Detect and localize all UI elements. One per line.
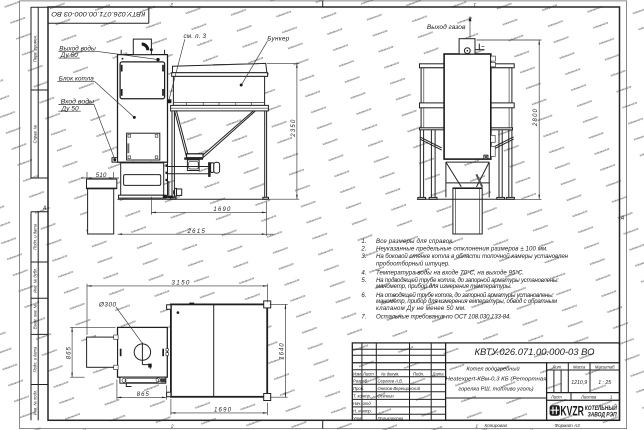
svg-text:1690: 1690 — [214, 407, 232, 413]
svg-text:Подп. и дата: Подп. и дата — [32, 223, 37, 249]
svg-text:Нач. отд: Нач. отд — [353, 401, 371, 406]
svg-text:Дата: Дата — [432, 371, 445, 376]
svg-text:КВТУ.026.071.00.000-03 ВО: КВТУ.026.071.00.000-03 ВО — [475, 347, 596, 358]
svg-text:ЗАВОД РЭП: ЗАВОД РЭП — [588, 412, 618, 418]
svg-text:Утв.: Утв. — [353, 416, 363, 421]
svg-text:Инв. № подл.: Инв. № подл. — [32, 390, 37, 415]
svg-text:Температура воды на входе 70°С: Температура воды на входе 70°С, на выход… — [376, 269, 524, 276]
svg-text:Масса: Масса — [573, 364, 586, 369]
svg-text:Инв. № дубл.: Инв. № дубл. — [32, 268, 37, 293]
svg-text:Выход газов: Выход газов — [427, 23, 466, 31]
svg-text:пробоотборный штуцер.: пробоотборный штуцер. — [376, 260, 450, 267]
svg-text:Остальные требования по ОСТ 10: Остальные требования по ОСТ 108.030.133-… — [376, 314, 511, 321]
svg-text:Разраб.: Разраб. — [353, 379, 368, 384]
svg-text:КОТЕЛЬНЫЙ: КОТЕЛЬНЫЙ — [585, 404, 618, 412]
svg-text:865: 865 — [137, 392, 150, 398]
svg-text:Справ. №: Справ. № — [32, 124, 37, 143]
svg-text:1 : 25: 1 : 25 — [598, 380, 611, 386]
svg-text:Осечкин: Осечкин — [378, 394, 395, 399]
svg-text:А: А — [42, 206, 47, 212]
svg-text:4.: 4. — [361, 269, 366, 276]
svg-text:Подп. и дата: Подп. и дата — [32, 346, 37, 372]
svg-text:3150: 3150 — [172, 280, 191, 286]
svg-text:1: 1 — [476, 423, 479, 428]
svg-text:KVZR: KVZR — [560, 403, 584, 418]
svg-text:Все размеры для справок.: Все размеры для справок. — [376, 238, 454, 245]
svg-text:манометр, прибор для измерения: манометр, прибор для измерения температу… — [376, 283, 512, 290]
svg-text:горелка РШ, топливо уголь): горелка РШ, топливо уголь) — [458, 386, 533, 392]
svg-text:Бункер: Бункер — [267, 35, 289, 42]
svg-text:Изм: Изм — [353, 371, 361, 376]
svg-text:Масштаб: Масштаб — [595, 364, 615, 369]
svg-text:510: 510 — [96, 173, 107, 179]
svg-text:2: 2 — [170, 423, 174, 428]
svg-text:1.: 1. — [361, 238, 366, 245]
svg-text:Листов: Листов — [580, 395, 597, 400]
svg-text:Перв. примен.: Перв. примен. — [32, 35, 37, 62]
svg-text:865: 865 — [66, 347, 72, 360]
svg-text:1640: 1640 — [280, 343, 286, 360]
svg-text:Сергеев А.В.: Сергеев А.В. — [378, 379, 404, 384]
svg-text:6.: 6. — [361, 292, 366, 299]
svg-text:Поликарпова: Поликарпова — [378, 416, 404, 421]
svg-text:Лист: Лист — [550, 395, 562, 400]
svg-text:Т. контр.: Т. контр. — [353, 394, 371, 399]
svg-text:3.: 3. — [361, 253, 366, 260]
svg-text:Копировал: Копировал — [485, 423, 508, 428]
svg-text:КВТУ.026.071.00.000-03 ВО: КВТУ.026.071.00.000-03 ВО — [51, 10, 145, 17]
svg-text:Подп.: Подп. — [413, 371, 424, 376]
svg-text:Взам. инв. №: Взам. инв. № — [32, 303, 37, 329]
svg-text:Н. контр.: Н. контр. — [353, 409, 372, 414]
svg-text:Проб.: Проб. — [353, 386, 364, 391]
svg-text:клапаном Ду не менее 50 мм.: клапаном Ду не менее 50 мм. — [376, 305, 466, 312]
svg-text:1690: 1690 — [213, 207, 231, 213]
svg-text:2615: 2615 — [187, 229, 206, 235]
svg-text:7.: 7. — [361, 314, 366, 321]
svg-text:5.: 5. — [361, 277, 366, 284]
svg-text:Неуказанные предельные отклоне: Неуказанные предельные отклонения размер… — [376, 246, 548, 253]
svg-text:2.: 2. — [360, 246, 366, 253]
svg-text:2350: 2350 — [291, 119, 297, 138]
svg-text:Лит.: Лит. — [551, 364, 562, 369]
svg-text:№ докум.: № докум. — [381, 371, 399, 376]
svg-text:1210,9: 1210,9 — [571, 380, 587, 386]
svg-text:1: 1 — [610, 395, 612, 400]
svg-text:Heatexpert-КВм-0,3 КБ (Ретортн: Heatexpert-КВм-0,3 КБ (Ретортная — [446, 376, 547, 382]
svg-text:Котел водогрейный: Котел водогрейный — [466, 365, 519, 372]
svg-text:А: А — [620, 216, 625, 222]
svg-text:2800: 2800 — [533, 108, 539, 127]
svg-text:Формат А3: Формат А3 — [555, 423, 581, 428]
svg-text:Ø300: Ø300 — [98, 302, 116, 309]
svg-text:Онегов-Верещинский: Онегов-Верещинский — [378, 386, 421, 391]
svg-text:На боковой стенке котла в обла: На боковой стенке котла в области топочн… — [376, 253, 569, 260]
svg-text:см. п. 3: см. п. 3 — [184, 33, 207, 40]
svg-text:Лист: Лист — [362, 371, 374, 376]
